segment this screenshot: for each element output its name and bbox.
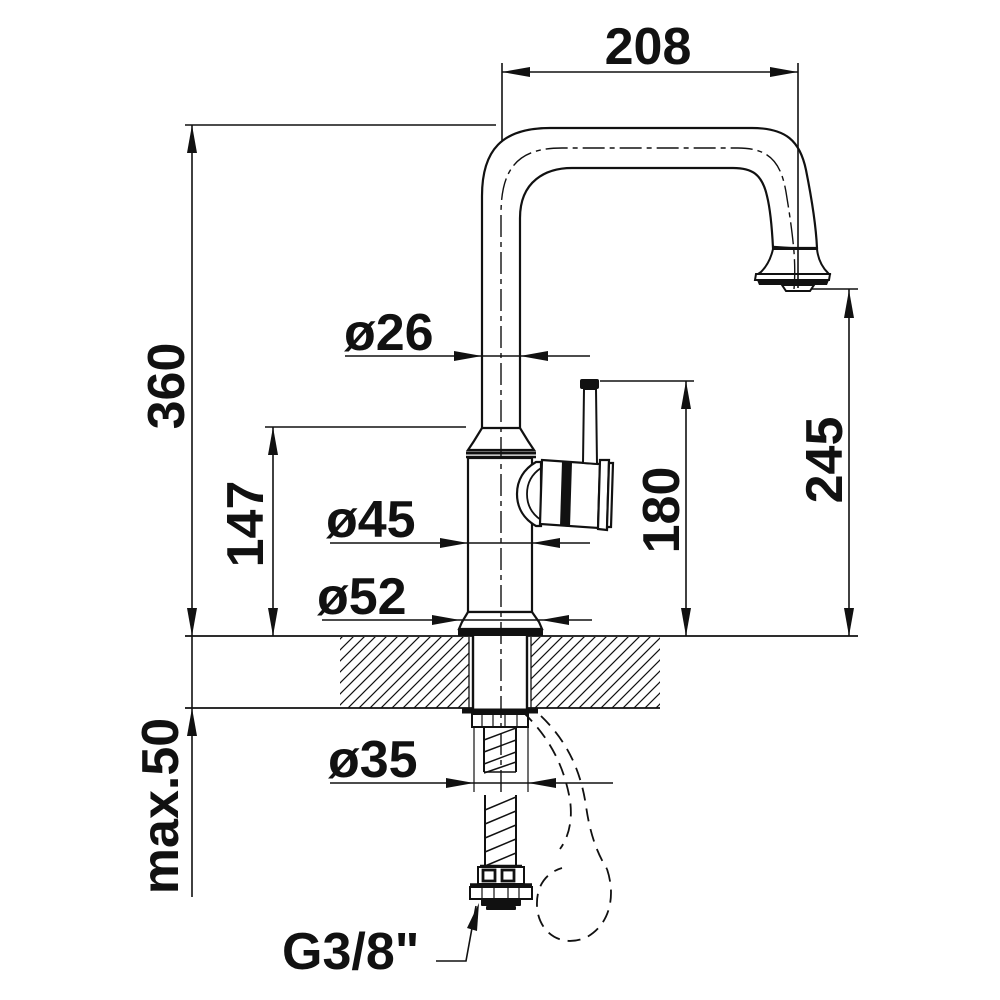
arrow-o35-left bbox=[446, 778, 474, 788]
arrow-147-bottom bbox=[268, 608, 278, 636]
arrow-o45-right bbox=[532, 538, 560, 548]
lever-rod-cap bbox=[580, 379, 599, 389]
nozzle-rim bbox=[755, 274, 830, 280]
supply-thread-label: G3/8" bbox=[282, 923, 419, 981]
arrow-o26-left bbox=[454, 351, 482, 361]
arrow-o26-right bbox=[520, 351, 548, 361]
fitting-window-right bbox=[502, 870, 514, 881]
arrow-180-top bbox=[681, 381, 691, 409]
fitting-window-left bbox=[483, 870, 495, 881]
arrow-360-bottom bbox=[187, 608, 197, 636]
faucet-technical-drawing: 208 360 147 max.50 ø26 ø45 ø52 180 245 ø… bbox=[0, 0, 1000, 1000]
arrow-o52-left bbox=[432, 615, 460, 625]
supply-fitting bbox=[470, 866, 532, 910]
arrow-o45-left bbox=[440, 538, 468, 548]
arrow-147-top bbox=[268, 427, 278, 455]
arrow-180-bottom bbox=[681, 608, 691, 636]
arrow-208-right bbox=[770, 67, 798, 77]
phantom-hose-dashed bbox=[523, 712, 611, 941]
lever-rod bbox=[583, 389, 597, 464]
max-counter-thickness-label: max.50 bbox=[132, 718, 190, 894]
spout-reach-label: 208 bbox=[605, 18, 692, 76]
arrow-208-left bbox=[502, 67, 530, 77]
countertop-hatch-left bbox=[340, 637, 469, 708]
overall-height-label: 360 bbox=[138, 343, 196, 430]
fitting-hex-nut bbox=[470, 887, 532, 899]
phantom-hose-loop bbox=[537, 868, 611, 941]
arrow-245-bottom bbox=[844, 608, 854, 636]
arrow-360-top bbox=[187, 125, 197, 153]
arrow-thread-leader bbox=[467, 903, 479, 931]
handle-end-cap-outer bbox=[607, 463, 613, 527]
supply-hose bbox=[485, 795, 516, 866]
arrow-o52-right bbox=[541, 615, 569, 625]
lever-top-height-label: 180 bbox=[633, 467, 691, 554]
arrow-245-top bbox=[844, 290, 854, 318]
countertop-hatch-right bbox=[531, 637, 660, 708]
thread-leader-line bbox=[436, 906, 476, 961]
body-diameter-label: ø45 bbox=[326, 491, 416, 549]
base-diameter-label: ø52 bbox=[317, 568, 407, 626]
handle-band bbox=[560, 461, 572, 527]
body-top-height-label: 147 bbox=[217, 481, 275, 568]
fixing-nut bbox=[472, 714, 528, 727]
outlet-height-label: 245 bbox=[796, 417, 854, 504]
shank-fill bbox=[473, 636, 527, 709]
spout-tube-diameter-label: ø26 bbox=[344, 304, 434, 362]
arrow-o35-right bbox=[528, 778, 556, 788]
mounting-hole-diameter-label: ø35 bbox=[328, 731, 418, 789]
drawing-canvas: 208 360 147 max.50 ø26 ø45 ø52 180 245 ø… bbox=[0, 0, 1000, 1000]
